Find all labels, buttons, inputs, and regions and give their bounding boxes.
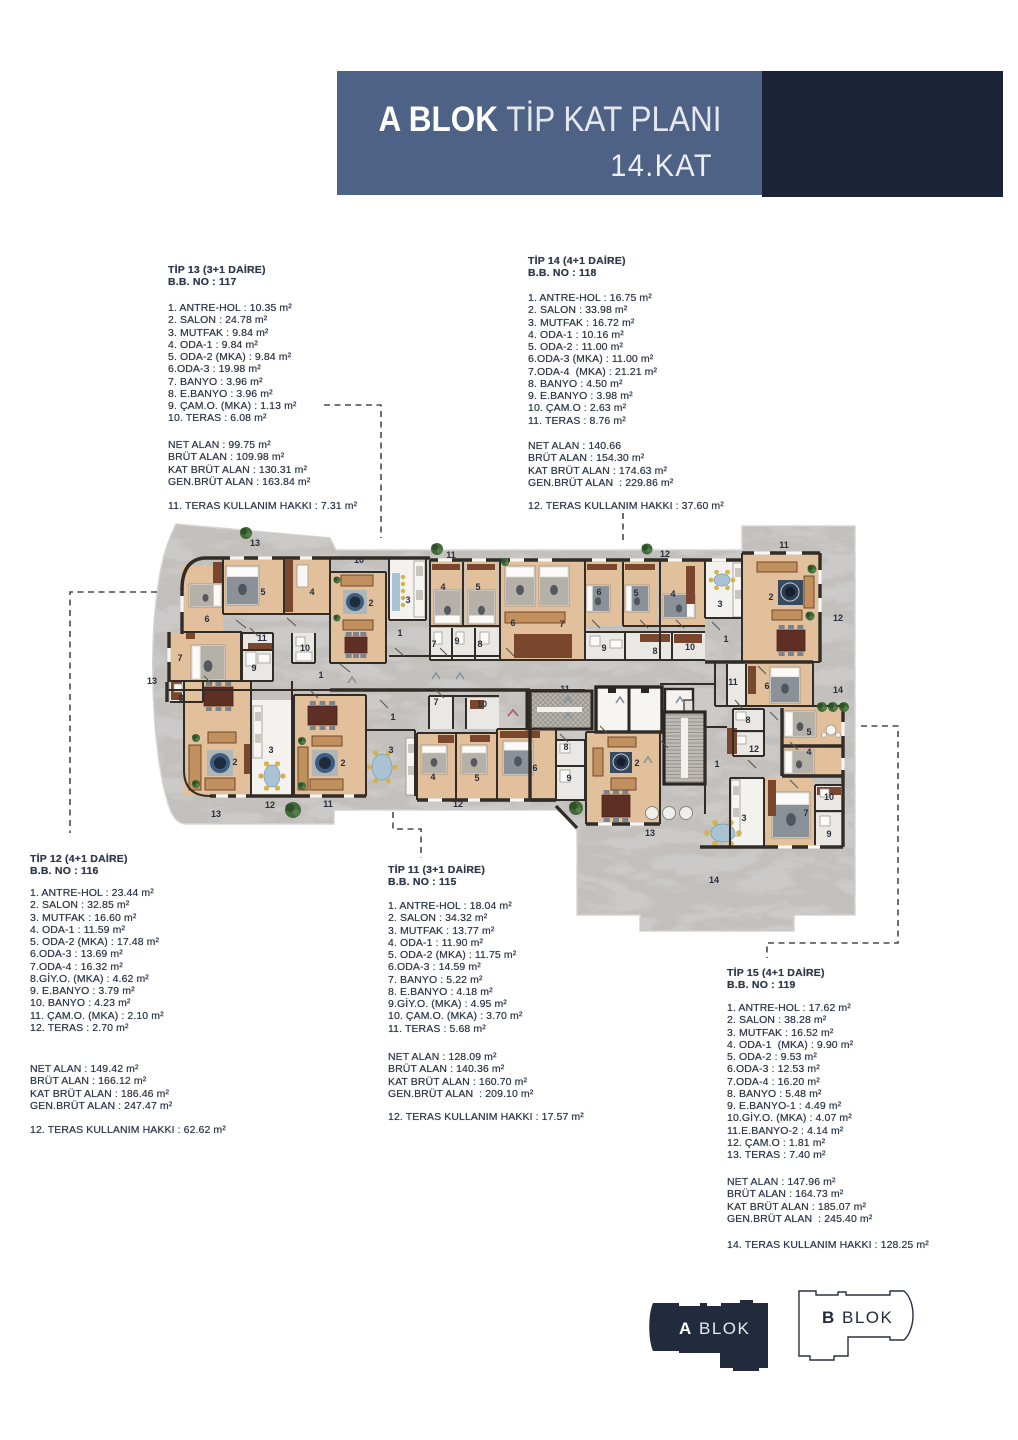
- svg-text:A BLOK: A BLOK: [679, 1319, 750, 1338]
- svg-text:6: 6: [532, 763, 537, 773]
- svg-text:10: 10: [354, 555, 364, 565]
- svg-text:7: 7: [177, 653, 182, 663]
- svg-text:12: 12: [453, 799, 463, 809]
- svg-text:10: 10: [685, 642, 695, 652]
- svg-text:B BLOK: B BLOK: [822, 1308, 893, 1327]
- svg-text:11: 11: [560, 684, 570, 694]
- svg-text:12: 12: [660, 549, 670, 559]
- svg-text:8: 8: [563, 742, 568, 752]
- svg-text:7: 7: [433, 697, 438, 707]
- svg-text:10: 10: [824, 792, 834, 802]
- svg-text:8: 8: [477, 639, 482, 649]
- svg-text:2: 2: [634, 758, 639, 768]
- svg-text:13: 13: [250, 538, 260, 548]
- svg-text:1: 1: [723, 634, 728, 644]
- svg-text:9: 9: [566, 773, 571, 783]
- svg-text:10: 10: [300, 643, 310, 653]
- svg-text:1: 1: [318, 670, 323, 680]
- svg-text:4: 4: [309, 587, 314, 597]
- svg-text:14: 14: [833, 685, 843, 695]
- svg-text:5: 5: [260, 587, 265, 597]
- svg-text:1: 1: [397, 628, 402, 638]
- svg-text:3: 3: [717, 599, 722, 609]
- svg-text:7: 7: [559, 619, 564, 629]
- svg-text:6: 6: [596, 587, 601, 597]
- svg-text:11: 11: [728, 677, 738, 687]
- svg-text:13: 13: [147, 676, 157, 686]
- svg-text:1: 1: [390, 712, 395, 722]
- svg-text:5: 5: [806, 727, 811, 737]
- svg-text:2: 2: [368, 598, 373, 608]
- svg-text:4: 4: [430, 772, 435, 782]
- svg-text:3: 3: [405, 595, 410, 605]
- svg-text:2: 2: [340, 758, 345, 768]
- svg-text:11: 11: [323, 799, 333, 809]
- svg-text:5: 5: [633, 588, 638, 598]
- svg-text:13: 13: [211, 809, 221, 819]
- svg-text:4: 4: [670, 589, 675, 599]
- svg-text:5: 5: [475, 582, 480, 592]
- svg-text:4: 4: [806, 747, 811, 757]
- svg-text:9: 9: [251, 663, 256, 673]
- svg-text:5: 5: [474, 773, 479, 783]
- svg-text:14: 14: [709, 875, 719, 885]
- svg-text:9: 9: [601, 643, 606, 653]
- svg-text:6: 6: [764, 681, 769, 691]
- svg-text:2: 2: [232, 757, 237, 767]
- svg-text:8: 8: [745, 715, 750, 725]
- svg-text:7: 7: [431, 639, 436, 649]
- svg-text:1: 1: [714, 759, 719, 769]
- svg-text:9: 9: [826, 829, 831, 839]
- svg-text:12: 12: [265, 800, 275, 810]
- svg-text:2: 2: [768, 592, 773, 602]
- svg-text:4: 4: [440, 582, 445, 592]
- svg-text:11: 11: [779, 540, 789, 550]
- svg-text:10: 10: [477, 699, 487, 709]
- svg-text:13: 13: [645, 828, 655, 838]
- svg-text:7: 7: [803, 808, 808, 818]
- svg-text:12: 12: [749, 744, 759, 754]
- svg-text:6: 6: [510, 618, 515, 628]
- svg-text:6: 6: [204, 614, 209, 624]
- svg-text:3: 3: [268, 745, 273, 755]
- svg-text:8: 8: [178, 693, 183, 703]
- svg-text:3: 3: [741, 813, 746, 823]
- svg-text:9: 9: [454, 636, 459, 646]
- svg-text:3: 3: [388, 745, 393, 755]
- svg-text:11: 11: [446, 550, 456, 560]
- svg-text:12: 12: [833, 613, 843, 623]
- svg-text:8: 8: [652, 646, 657, 656]
- svg-text:11: 11: [257, 633, 267, 643]
